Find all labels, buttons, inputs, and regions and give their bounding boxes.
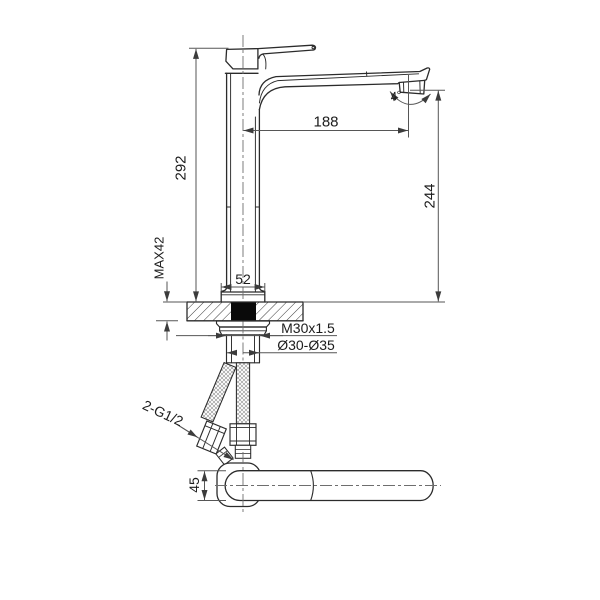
dim-label-overall-height: 292 — [174, 155, 189, 180]
handle-lever-front — [225, 45, 315, 73]
front-view — [221, 45, 430, 302]
lever-tip-detail — [312, 46, 314, 48]
faucet-dimension-drawing: 292 MAX42 52 188 244 4° M30x1.5 Ø30-Ø35 … — [0, 0, 600, 600]
dimension-lines — [156, 48, 445, 500]
counter-hatch-left — [187, 302, 231, 320]
braided-hose-diagonal — [201, 363, 236, 422]
dim-label-mounting-thread: M30x1.5 — [281, 321, 335, 335]
drawing-linework — [0, 0, 600, 600]
dim-label-outlet-height: 244 — [423, 183, 438, 208]
braided-hose-vertical — [236, 363, 249, 424]
aerator — [399, 80, 425, 94]
mounting-hole-fill — [231, 302, 256, 321]
dim-label-spout-reach: 188 — [313, 115, 338, 130]
countertop-section — [187, 302, 303, 321]
dim-label-counter-thickness: MAX42 — [153, 237, 166, 280]
dim-label-handle-width: 45 — [187, 477, 201, 493]
supply-hoses — [197, 363, 256, 465]
top-view — [217, 463, 433, 507]
counter-hatch-right — [256, 302, 303, 320]
dim-label-hole-diameter: Ø30-Ø35 — [277, 338, 335, 352]
dim-label-base-width: 52 — [235, 272, 251, 286]
